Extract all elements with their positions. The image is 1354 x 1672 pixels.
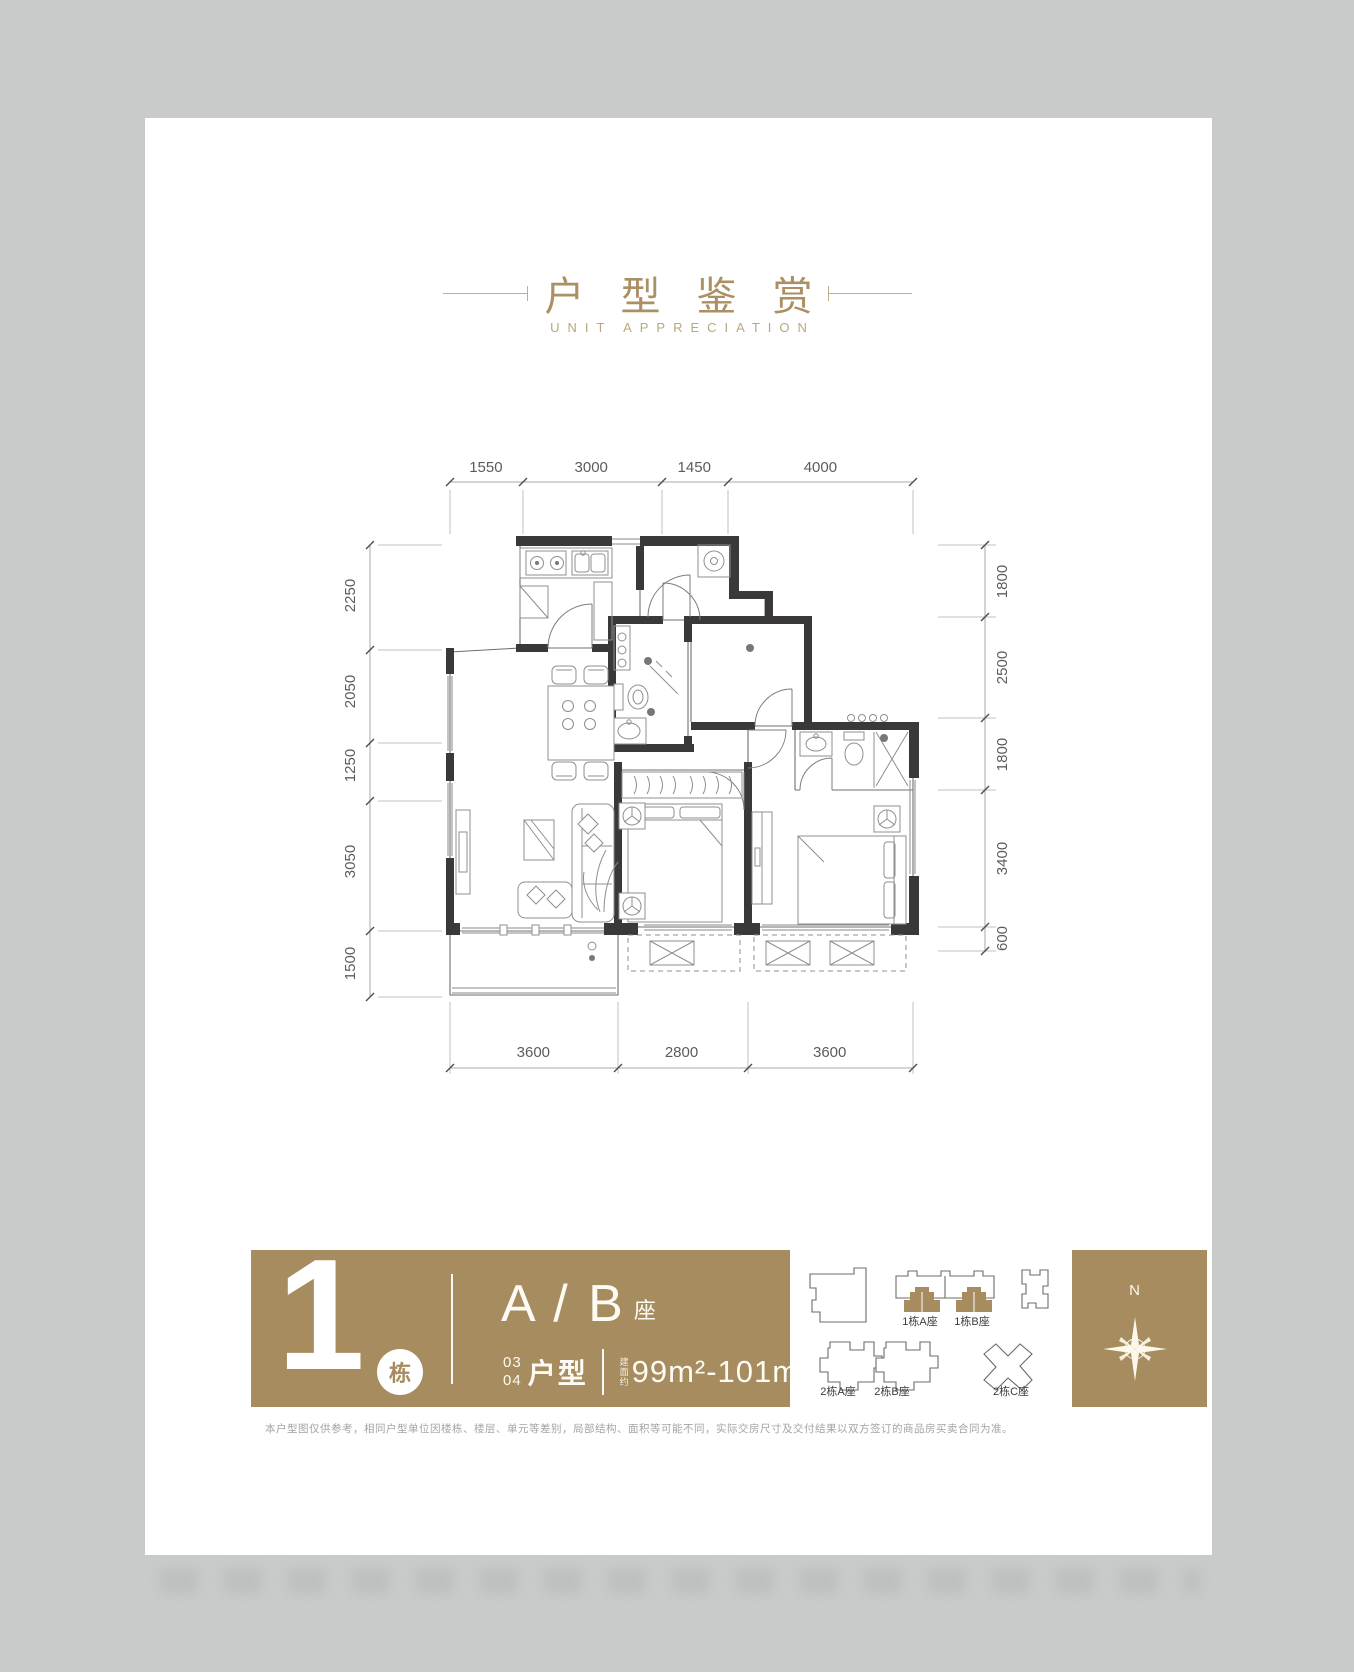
dimension-segment: 1250 [338,737,364,793]
dimension-segment: 3600 [746,1040,913,1064]
dimension-segment: 3600 [450,1040,617,1064]
compass: N [1095,1256,1175,1406]
dimensions-right: 1800250018003400600 [990,545,1016,951]
furniture-living [456,804,618,922]
building-number: 1 [277,1236,365,1394]
walls-outline [450,541,913,995]
furniture-bathroom [612,626,678,744]
dimension-segment: 3400 [990,790,1016,927]
title-rule-right [828,293,912,294]
floor-plan-drawing [330,440,1030,1090]
dimensions-bottom: 360028003600 [450,1040,913,1064]
compass-north-label: N [1095,1282,1175,1299]
dimension-segment: 3050 [338,793,364,930]
dimension-segment: 2800 [617,1040,747,1064]
unit-type-label: 户型 [528,1352,588,1392]
dimension-segment: 2050 [338,646,364,738]
dimension-segment: 2500 [990,617,1016,718]
unit-number-bottom: 04 [503,1372,522,1390]
disclaimer-text: 本户型图仅供参考，相同户型单位因楼栋、楼层、单元等差别，局部结构、面积等可能不同… [265,1421,1105,1436]
page-title: 户型鉴赏 [145,264,1212,322]
area-range: 99m²-101m² [632,1354,811,1390]
site-label-2b: 2栋B座 [867,1383,917,1399]
poster-page: 户型鉴赏 UNIT APPRECIATION [0,0,1354,1672]
furniture-master-bedroom [752,806,906,924]
page-subtitle: UNIT APPRECIATION [145,320,1212,335]
dimension-segment: 1450 [661,456,728,478]
dimension-segment: 2250 [338,545,364,646]
site-label-2c: 2栋C座 [986,1383,1036,1399]
furniture-bedroom2 [619,772,742,922]
dimension-segment: 1800 [990,545,1016,617]
dimension-segment: 600 [990,927,1016,951]
block-suffix: 座 [634,1293,656,1325]
band-divider [451,1274,453,1384]
furniture-dining [548,666,614,780]
building-suffix-badge: 栋 [377,1349,423,1395]
site-label-1a: 1栋A座 [895,1313,945,1329]
dimension-segment: 1500 [338,930,364,997]
dimension-segment: 4000 [728,456,913,478]
compass-rose-icon [1095,1299,1175,1399]
dimension-segment: 1800 [990,718,1016,790]
balcony-and-ac-platforms [588,935,906,971]
type-divider [602,1349,604,1395]
site-plan-panel: 1栋A座 1栋B座 2栋A座 2栋B座 2栋C座 [790,1250,1072,1407]
unit-number-top: 03 [503,1354,522,1372]
dimensions-top: 1550300014504000 [450,456,913,478]
block-label: A / B [501,1278,626,1330]
dimension-segment: 1550 [450,456,522,478]
info-band: 1 栋 A / B 座 03 04 户型 建面约 99m²-101m² [251,1250,1207,1407]
poster-card: 户型鉴赏 UNIT APPRECIATION [145,118,1212,1555]
area-prefix: 建面约 [618,1357,628,1387]
site-label-1b: 1栋B座 [947,1313,997,1329]
dimension-segment: 3000 [522,456,661,478]
site-label-2a: 2栋A座 [813,1383,863,1399]
furniture-kitchen [520,548,612,640]
dimensions-left: 22502050125030501500 [338,545,364,997]
background-smudge [160,1568,1200,1594]
floor-plan: 1550300014504000 360028003600 2250205012… [330,440,1030,1090]
